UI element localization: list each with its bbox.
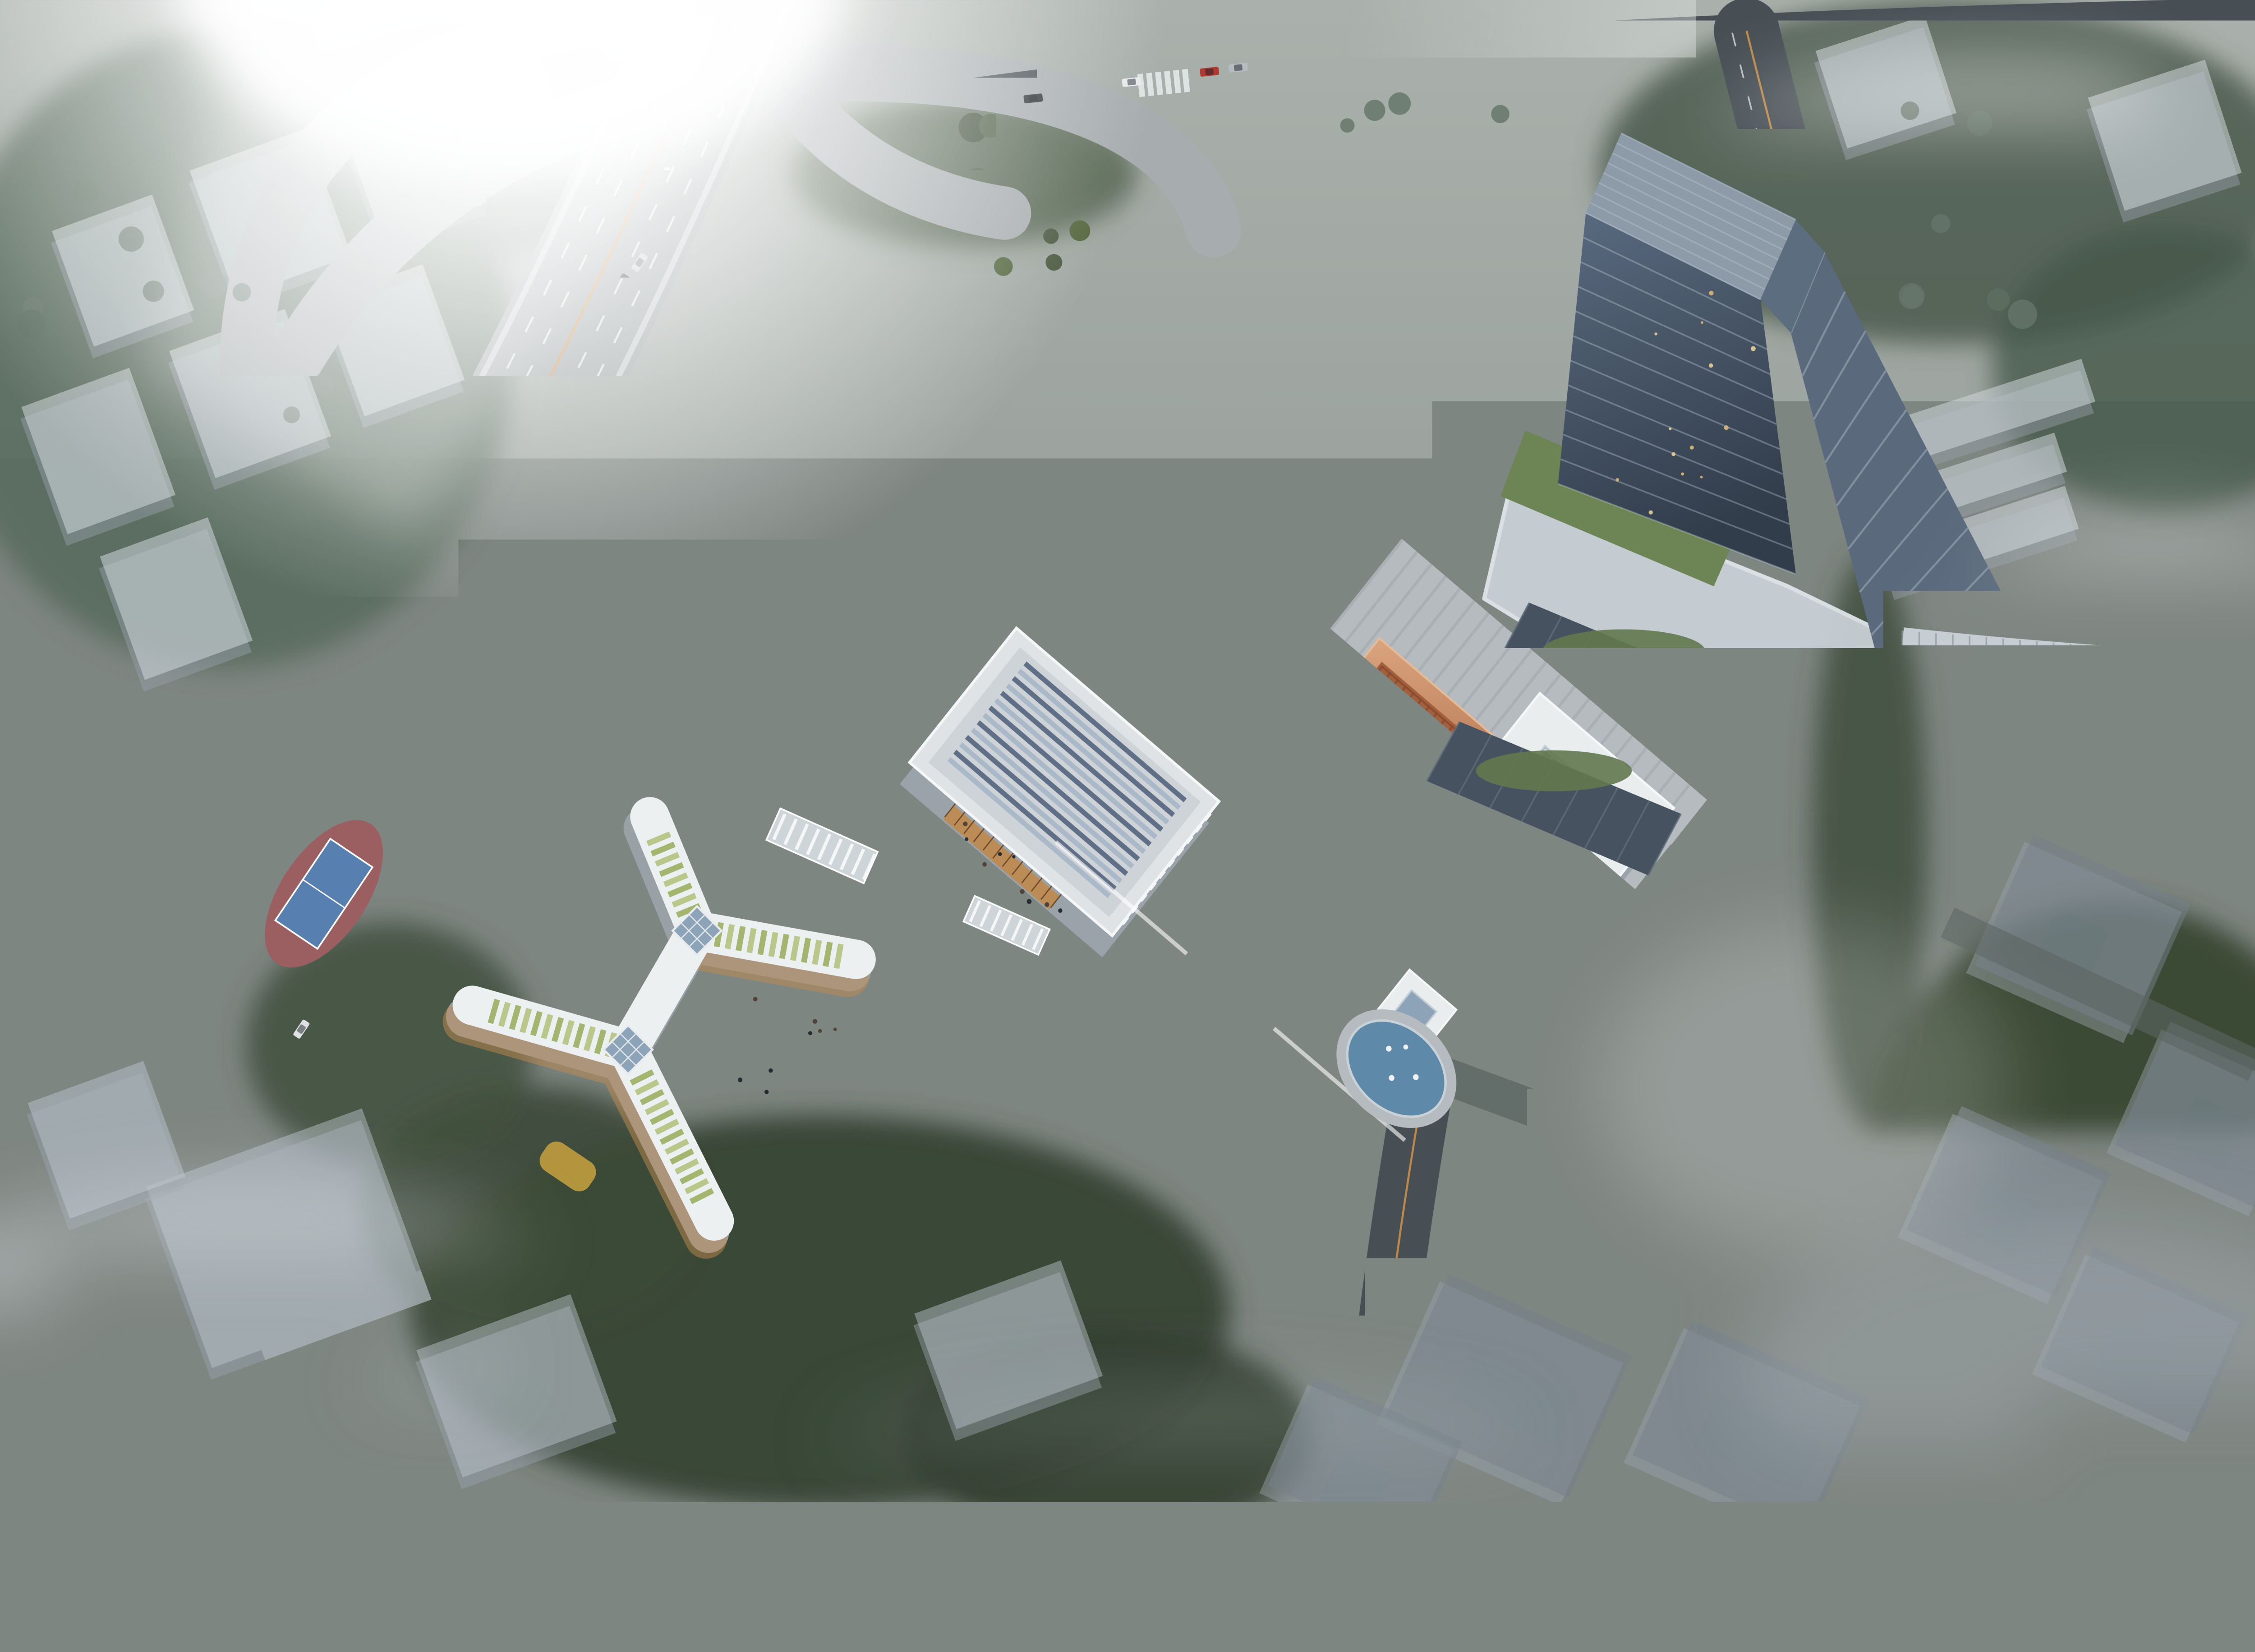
tree [1129, 1322, 1152, 1345]
tree [1490, 733, 1501, 745]
tree [308, 1051, 323, 1066]
person [769, 1068, 773, 1073]
person [808, 1031, 812, 1035]
car [1865, 687, 1875, 707]
tree [1530, 701, 1545, 716]
tree [692, 1123, 713, 1144]
person [813, 1019, 818, 1024]
tree [1502, 691, 1514, 703]
tree [902, 1102, 926, 1126]
person [764, 1090, 769, 1094]
car-roof [1370, 1307, 1377, 1316]
tree [824, 1288, 847, 1310]
tree [661, 1102, 688, 1129]
tree [1599, 740, 1619, 759]
person [833, 1027, 837, 1031]
tree [883, 1306, 912, 1335]
car-roof [1388, 1184, 1395, 1193]
person [738, 1077, 742, 1082]
tree [664, 1151, 689, 1176]
tree [709, 1312, 731, 1334]
tree [1468, 964, 1489, 985]
tree [635, 1206, 655, 1226]
tree [834, 1225, 857, 1248]
tree [1533, 617, 1551, 635]
person [753, 997, 758, 1001]
tree [1686, 1252, 1707, 1272]
tree [663, 1211, 687, 1235]
tree [784, 1137, 807, 1160]
fog-wisp [1599, 922, 2009, 1250]
tree [732, 1175, 756, 1199]
tree [2019, 1028, 2041, 1050]
tree [1413, 920, 1431, 938]
tree [1501, 909, 1520, 928]
tree [521, 992, 535, 1006]
tree [2231, 966, 2255, 990]
tree [784, 1326, 813, 1355]
tree [892, 1187, 924, 1219]
tree [1629, 688, 1645, 704]
tree [900, 1130, 928, 1157]
tree [844, 1107, 862, 1125]
tree [2103, 990, 2132, 1020]
tree [1523, 674, 1537, 688]
car-roof [1866, 693, 1873, 702]
tree [1552, 695, 1565, 708]
tree [1450, 921, 1470, 941]
tree [1672, 619, 1692, 639]
tree-yellow [1325, 855, 1343, 873]
tree [1562, 940, 1577, 955]
render-stage [0, 0, 2255, 1502]
tree [807, 1227, 828, 1248]
person [818, 1029, 822, 1033]
tree [2164, 1177, 2187, 1200]
tree [1668, 1278, 1683, 1293]
campus-aerial-rendering [0, 0, 2255, 1502]
tree [879, 1218, 903, 1242]
tree [1578, 738, 1589, 750]
tree [1714, 628, 1734, 648]
tree [878, 1174, 898, 1194]
